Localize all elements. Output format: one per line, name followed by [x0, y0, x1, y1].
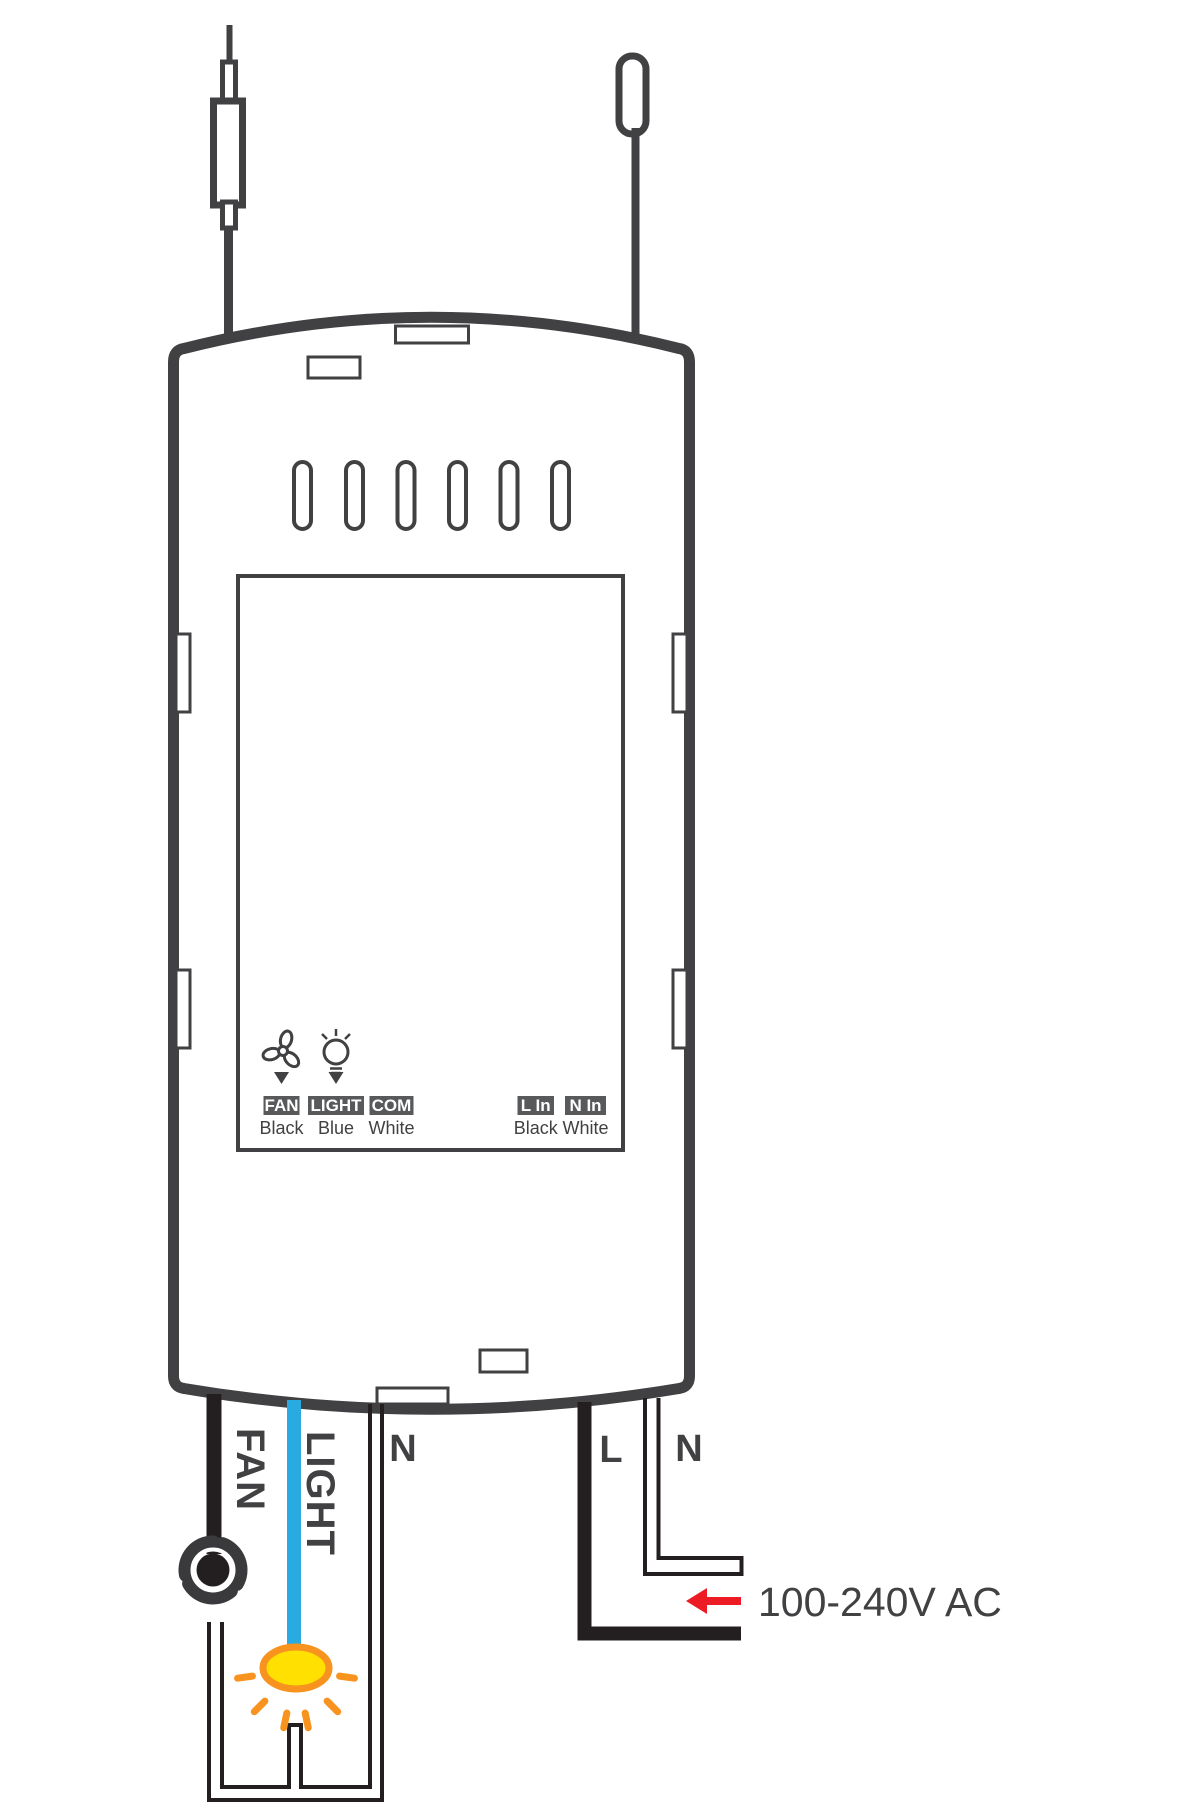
- vent-slot: [552, 462, 569, 529]
- n-in-wire-color: White: [562, 1118, 608, 1138]
- light-glow-icon: [238, 1647, 355, 1728]
- vent-slot: [294, 462, 311, 529]
- fan-wire-label: FAN: [228, 1428, 272, 1511]
- vent-slot: [449, 462, 466, 529]
- left-antenna: [214, 25, 243, 356]
- upper-detail-slot: [308, 357, 360, 378]
- l-in-terminal-badge-label: L In: [521, 1096, 551, 1115]
- light-terminal-badge-label: LIGHT: [311, 1096, 363, 1115]
- ceiling-fan-icon: [177, 1540, 240, 1606]
- svg-text:LIGHT: LIGHT: [298, 1431, 342, 1556]
- light-wire-label: LIGHT: [298, 1431, 342, 1556]
- light-wire-color: Blue: [318, 1118, 354, 1138]
- left-antenna-neck-bottom: [223, 202, 236, 228]
- power-source-label: 100-240V AC: [758, 1579, 1002, 1625]
- svg-text:FAN: FAN: [228, 1428, 272, 1511]
- left-antenna-body: [214, 101, 243, 205]
- right-antenna: [619, 56, 646, 356]
- wiring-diagram-page: FAN LIGHT COM L In N In Black Blue White…: [0, 0, 1196, 1818]
- com-wire-color: White: [368, 1118, 414, 1138]
- power-arrow-icon: [686, 1588, 741, 1614]
- side-notch-left-lower: [176, 970, 190, 1048]
- vent-slot: [398, 462, 415, 529]
- vent-slot: [501, 462, 518, 529]
- l-in-wire-color: Black: [514, 1118, 559, 1138]
- side-notch-right-lower: [673, 970, 687, 1048]
- bottom-detail-slot: [480, 1350, 527, 1372]
- live-input-label: L: [599, 1429, 622, 1471]
- neutral-input-wire-outline: [645, 1398, 742, 1574]
- fan-wire-color: Black: [259, 1118, 304, 1138]
- bottom-mount-notch: [377, 1388, 448, 1404]
- vent-slot: [346, 462, 363, 529]
- fan-receiver-wiring-diagram: FAN LIGHT COM L In N In Black Blue White…: [0, 0, 1196, 1818]
- neutral-input-label: N: [675, 1428, 702, 1470]
- top-mount-notch: [396, 326, 469, 343]
- side-notch-left-upper: [176, 634, 190, 712]
- side-notch-right-upper: [673, 634, 687, 712]
- neutral-output-label: N: [389, 1428, 416, 1470]
- com-terminal-badge-label: COM: [372, 1096, 412, 1115]
- n-in-terminal-badge-label: N In: [569, 1096, 601, 1115]
- right-antenna-cap: [619, 56, 646, 134]
- fan-terminal-badge-label: FAN: [265, 1096, 299, 1115]
